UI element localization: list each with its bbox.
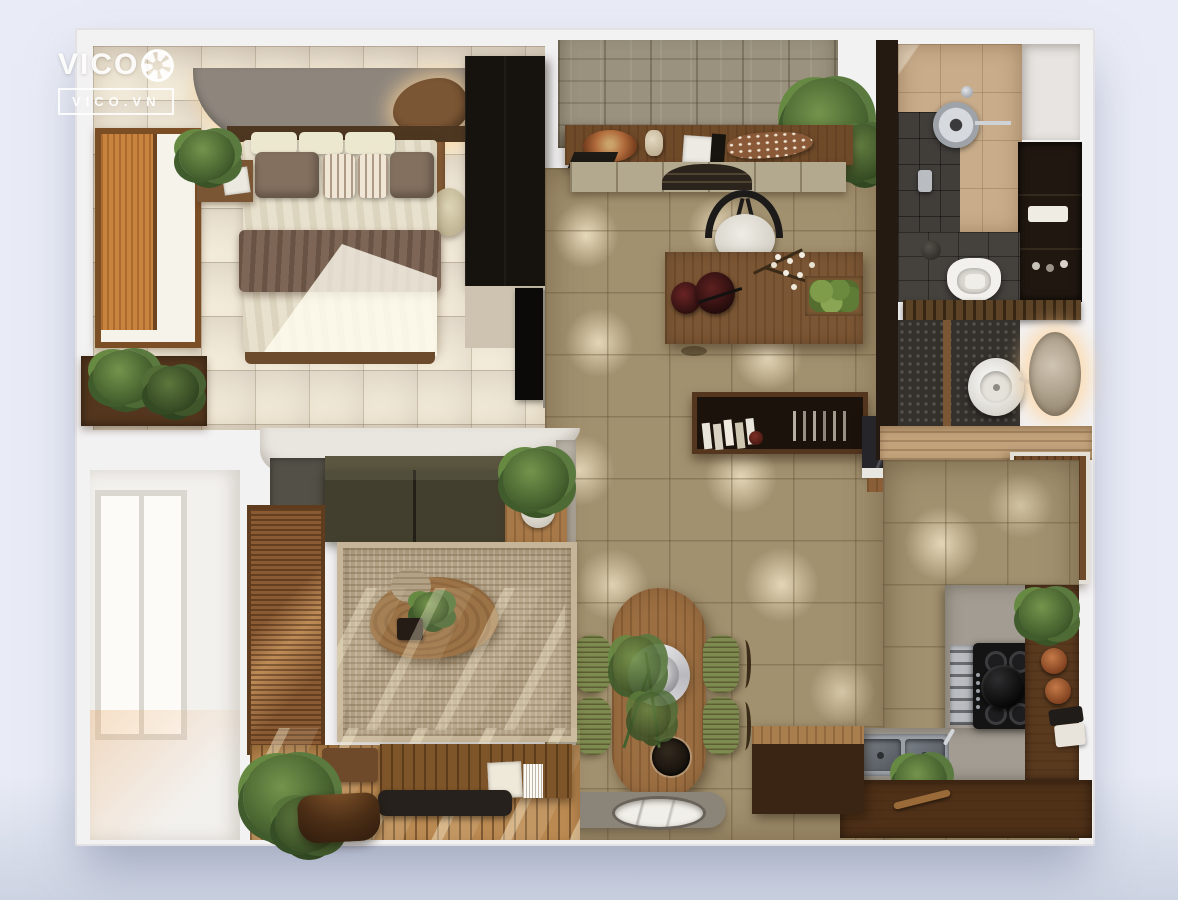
tv-panel: [515, 288, 543, 400]
balcony: [90, 470, 240, 840]
dining-chair-green: [703, 635, 739, 693]
spice-jar: [1045, 678, 1071, 704]
island-top: [752, 726, 864, 744]
door-mullion: [139, 496, 144, 734]
hob-controls: [976, 673, 980, 677]
shower-arm: [975, 121, 1011, 125]
brown-pillow: [390, 152, 434, 198]
footboard: [245, 352, 435, 364]
vanity-wood-frame: [943, 320, 951, 426]
dining-chair-green: [575, 635, 611, 693]
wardrobe: [465, 56, 545, 286]
sink-drain: [877, 752, 884, 759]
watermark-domain: VICO.VN: [58, 88, 174, 115]
cabinet-niche: [662, 164, 752, 190]
waste-bin: [921, 240, 941, 260]
throw-blanket: [239, 230, 441, 292]
shower-mixer: [918, 170, 932, 192]
striped-pillow: [323, 154, 355, 198]
striped-pillow: [358, 154, 388, 198]
sofa-cushion-highlight: [325, 470, 505, 480]
moss-tray: [805, 276, 863, 316]
bath-storage-cabinet: [1018, 142, 1082, 302]
counter-plant: [1019, 588, 1073, 638]
cream-pillow: [299, 132, 343, 154]
dining-chair-green: [575, 697, 611, 755]
vase: [645, 130, 663, 156]
double-bed: [227, 126, 473, 366]
flower-blossoms: [775, 254, 781, 260]
apartment-shell: [75, 28, 1095, 846]
oven: [950, 645, 974, 725]
bathroom-divider-wall: [876, 40, 898, 460]
slatted-partition: [903, 300, 1081, 320]
gas-hob: [973, 643, 1031, 729]
toiletries: [1032, 262, 1040, 270]
rain-shower-head: [933, 102, 979, 148]
island-cabinet: [752, 726, 864, 814]
spice-jar: [1041, 648, 1067, 674]
balcony-door: [95, 490, 187, 740]
table-plant-foliage: [631, 692, 671, 738]
ledge-plant: [93, 350, 155, 404]
toilet: [947, 258, 1001, 302]
side-table-plant: [503, 448, 569, 510]
moss: [809, 280, 859, 312]
wall-cabinets: [570, 162, 846, 192]
nightstand-plant: [179, 130, 235, 180]
stock-pot: [981, 665, 1025, 709]
vessel-sink: [968, 358, 1024, 416]
sink-drain: [993, 384, 1000, 391]
cream-pillow: [345, 132, 395, 154]
desk-leg-shadow: [681, 346, 707, 356]
table-plant-foliage: [613, 636, 661, 694]
sofa-cushion-seam: [413, 470, 416, 542]
shelf-books: [702, 423, 713, 450]
towel: [1028, 206, 1068, 222]
toilet-lid-inset: [965, 274, 985, 289]
window-mullion: [153, 134, 157, 330]
duct-block: [1022, 44, 1080, 140]
bench-book-pages: [523, 764, 543, 798]
shower-knob: [961, 86, 973, 98]
backlit-round-mirror: [1029, 332, 1081, 416]
window-orange-blind: [101, 134, 153, 330]
low-bench: [322, 748, 378, 782]
balcony-warm-light: [90, 710, 240, 840]
coffee-table-box: [397, 618, 423, 640]
open-wood-shelf: [840, 780, 1092, 838]
cream-pillow: [251, 132, 297, 154]
watermark-brand-row: VICO: [58, 48, 174, 82]
book-dark: [710, 134, 726, 165]
bamboo-blind-door: [247, 505, 325, 755]
watermark-brand-text: VICO: [58, 48, 139, 82]
marble-basin: [612, 796, 706, 830]
brown-pillow: [255, 152, 319, 198]
curved-stool: [297, 792, 381, 844]
chair-armrest: [739, 640, 751, 688]
dining-chair-green: [703, 697, 739, 755]
ledge-plant: [147, 366, 199, 412]
bar-shelf-books: [692, 392, 868, 454]
camera-aperture-icon: [141, 49, 174, 82]
watermark: VICO VICO.VN: [58, 48, 174, 115]
floor-plan-render: VICO VICO.VN: [0, 0, 1178, 900]
wine-glasses: [793, 411, 796, 441]
kitchen-towel: [1054, 722, 1086, 747]
black-tray: [378, 790, 512, 816]
chair-armrest: [739, 702, 751, 750]
olive-sofa: [325, 470, 505, 542]
decor-red-bowl: [749, 431, 763, 445]
